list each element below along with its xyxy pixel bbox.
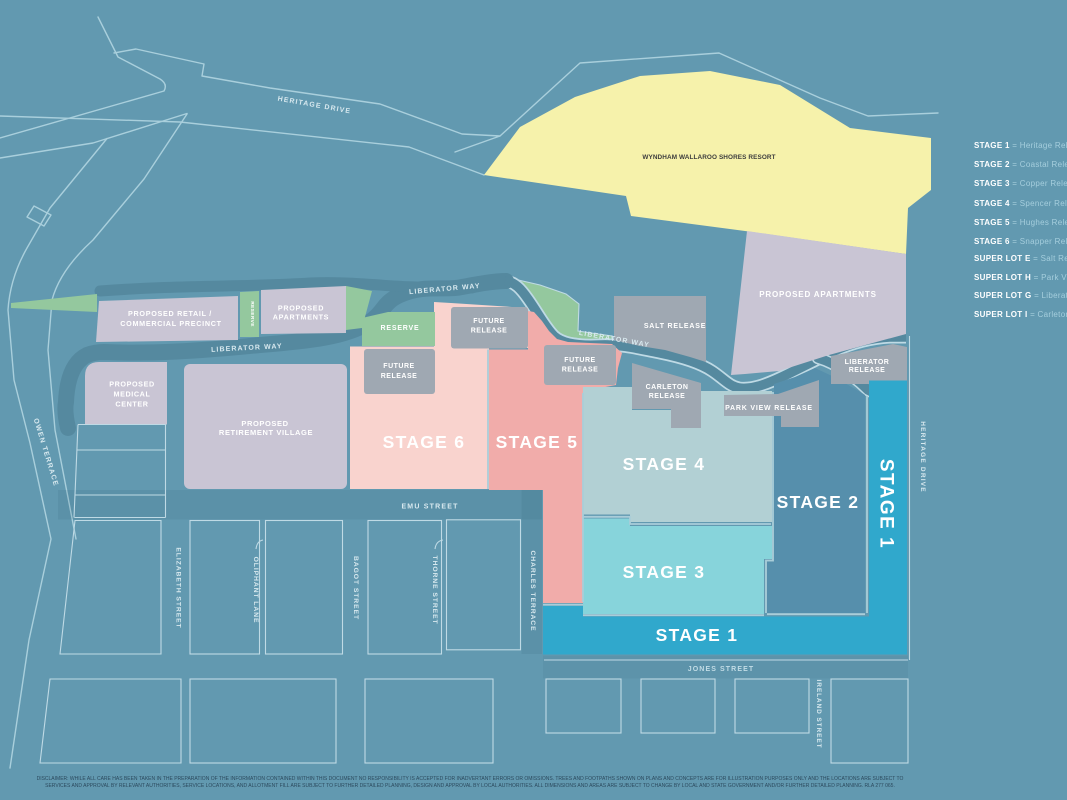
svg-text:CHARLES TERRACE: CHARLES TERRACE <box>529 550 536 631</box>
svg-text:STAGE 2 = Coastal Release: STAGE 2 = Coastal Release <box>974 160 1067 169</box>
svg-text:HERITAGE DRIVE: HERITAGE DRIVE <box>919 421 926 493</box>
svg-text:THORNE STREET: THORNE STREET <box>431 555 438 624</box>
svg-text:STAGE 2: STAGE 2 <box>777 492 860 512</box>
svg-text:IRELAND STREET: IRELAND STREET <box>815 680 822 749</box>
svg-text:RELEASE: RELEASE <box>471 328 508 335</box>
svg-text:WYNDHAM WALLAROO SHORES RESORT: WYNDHAM WALLAROO SHORES RESORT <box>642 154 775 161</box>
svg-text:OLIPHANT LANE: OLIPHANT LANE <box>252 557 259 624</box>
svg-text:FUTURE: FUTURE <box>473 318 504 325</box>
svg-text:COMMERCIAL PRECINCT: COMMERCIAL PRECINCT <box>120 319 221 328</box>
svg-text:LIBERATOR: LIBERATOR <box>845 359 890 366</box>
svg-text:FUTURE: FUTURE <box>564 357 595 364</box>
svg-text:STAGE 3 = Copper Release: STAGE 3 = Copper Release <box>974 179 1067 188</box>
svg-text:SUPER LOT H = Park View Releas: SUPER LOT H = Park View Release <box>974 273 1067 282</box>
svg-text:PROPOSED: PROPOSED <box>109 380 155 389</box>
svg-text:STAGE 1 = Heritage Release: STAGE 1 = Heritage Release <box>974 141 1067 150</box>
svg-text:STAGE 4 = Spencer Release: STAGE 4 = Spencer Release <box>974 199 1067 208</box>
svg-text:SUPER LOT I = Carleton Release: SUPER LOT I = Carleton Release <box>974 310 1067 319</box>
svg-text:JONES STREET: JONES STREET <box>688 666 755 673</box>
svg-text:APARTMENTS: APARTMENTS <box>273 313 329 322</box>
svg-text:RELEASE: RELEASE <box>562 367 599 374</box>
svg-text:PROPOSED APARTMENTS: PROPOSED APARTMENTS <box>759 290 876 299</box>
svg-text:RELEASE: RELEASE <box>381 373 418 380</box>
svg-text:RESERVE: RESERVE <box>249 301 255 327</box>
svg-text:STAGE 5 = Hughes Release: STAGE 5 = Hughes Release <box>974 218 1067 227</box>
svg-text:ELIZABETH STREET: ELIZABETH STREET <box>175 547 182 628</box>
svg-text:EMU STREET: EMU STREET <box>401 504 458 511</box>
svg-text:STAGE 6 = Snapper Release: STAGE 6 = Snapper Release <box>974 237 1067 246</box>
svg-text:DISCLAIMER: WHILE ALL CARE HAS: DISCLAIMER: WHILE ALL CARE HAS BEEN TAKE… <box>37 776 904 782</box>
svg-text:RELEASE: RELEASE <box>649 393 686 400</box>
svg-text:STAGE 6: STAGE 6 <box>383 432 466 452</box>
svg-text:PROPOSED: PROPOSED <box>241 419 288 428</box>
svg-text:RELEASE: RELEASE <box>849 367 886 374</box>
svg-text:CENTER: CENTER <box>115 400 148 409</box>
svg-text:RETIREMENT VILLAGE: RETIREMENT VILLAGE <box>219 428 313 437</box>
svg-text:FUTURE: FUTURE <box>383 363 414 370</box>
svg-text:STAGE 1: STAGE 1 <box>656 625 739 645</box>
svg-text:STAGE 4: STAGE 4 <box>623 454 706 474</box>
svg-text:PROPOSED: PROPOSED <box>278 304 324 313</box>
svg-text:SUPER LOT G = Liberator Releas: SUPER LOT G = Liberator Release <box>974 291 1067 300</box>
svg-text:MEDICAL: MEDICAL <box>114 390 151 399</box>
svg-text:BAGOT STREET: BAGOT STREET <box>352 556 359 620</box>
svg-text:PROPOSED RETAIL /: PROPOSED RETAIL / <box>128 309 212 318</box>
svg-text:SUPER LOT E = Salt Release: SUPER LOT E = Salt Release <box>974 254 1067 263</box>
svg-text:STAGE 1: STAGE 1 <box>876 459 897 549</box>
svg-text:STAGE 3: STAGE 3 <box>623 562 706 582</box>
svg-text:RESERVE: RESERVE <box>381 325 420 332</box>
svg-text:SALT RELEASE: SALT RELEASE <box>644 323 706 330</box>
svg-text:PARK VIEW RELEASE: PARK VIEW RELEASE <box>725 405 813 412</box>
svg-text:STAGE 5: STAGE 5 <box>496 432 579 452</box>
svg-text:CARLETON: CARLETON <box>646 384 689 391</box>
svg-text:SERVICES AND APPROVAL BY RELEV: SERVICES AND APPROVAL BY RELEVANT AUTHOR… <box>45 783 895 789</box>
